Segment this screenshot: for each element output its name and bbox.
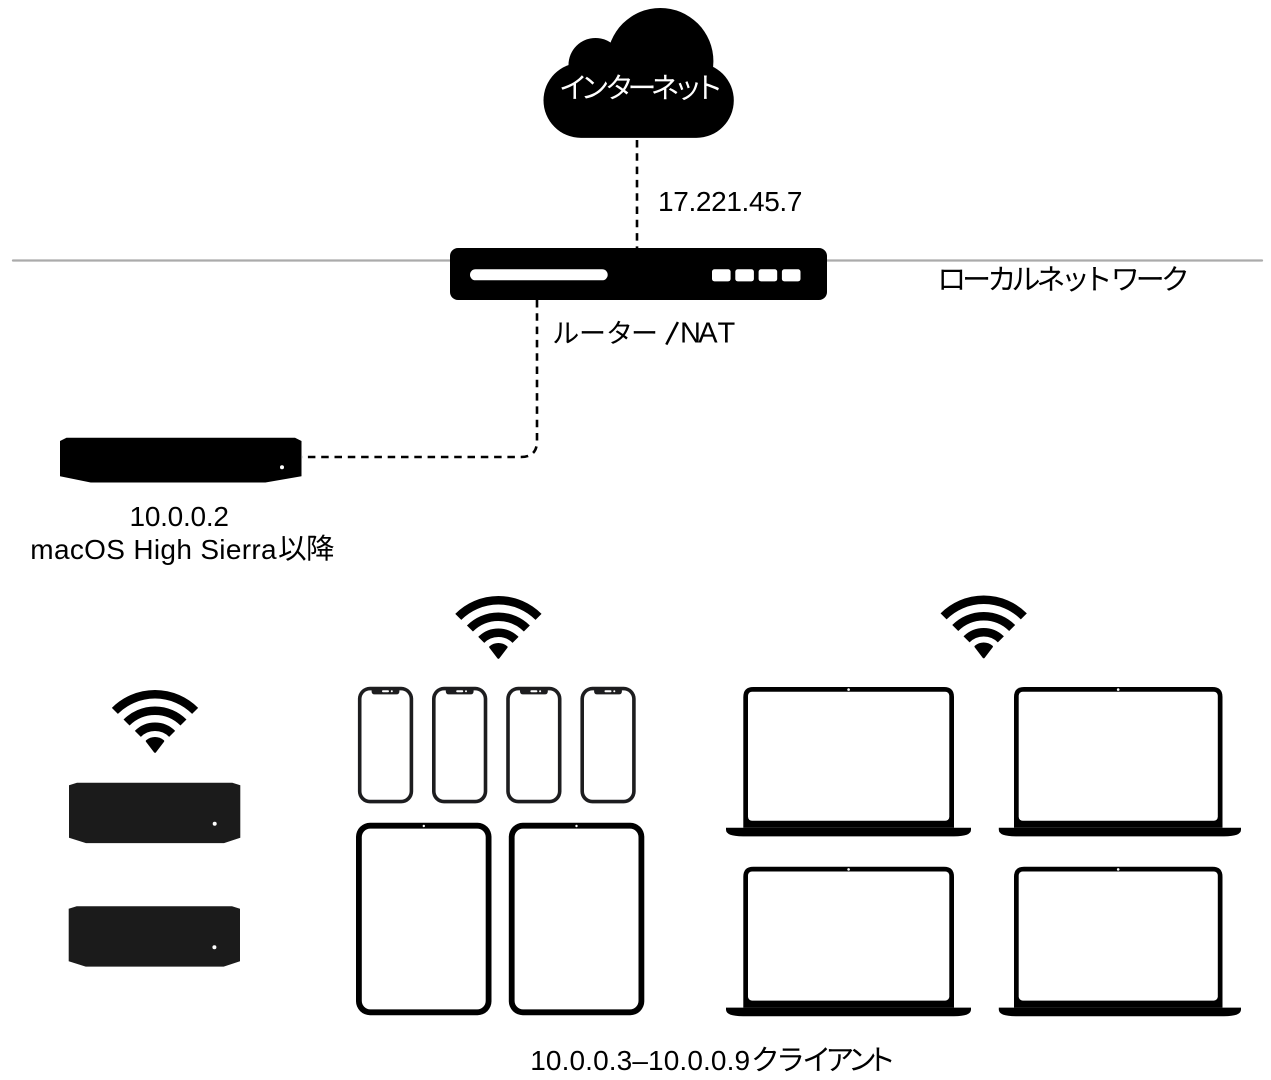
svg-text:macOS High Sierra: macOS High Sierra [30, 534, 277, 565]
svg-text:NAT: NAT [680, 318, 736, 350]
svg-text:17.221.45.7: 17.221.45.7 [658, 186, 802, 217]
svg-text:10.0.0.2: 10.0.0.2 [130, 501, 229, 532]
svg-text:10.0.0.3–10.0.0.9: 10.0.0.3–10.0.0.9 [530, 1045, 750, 1076]
